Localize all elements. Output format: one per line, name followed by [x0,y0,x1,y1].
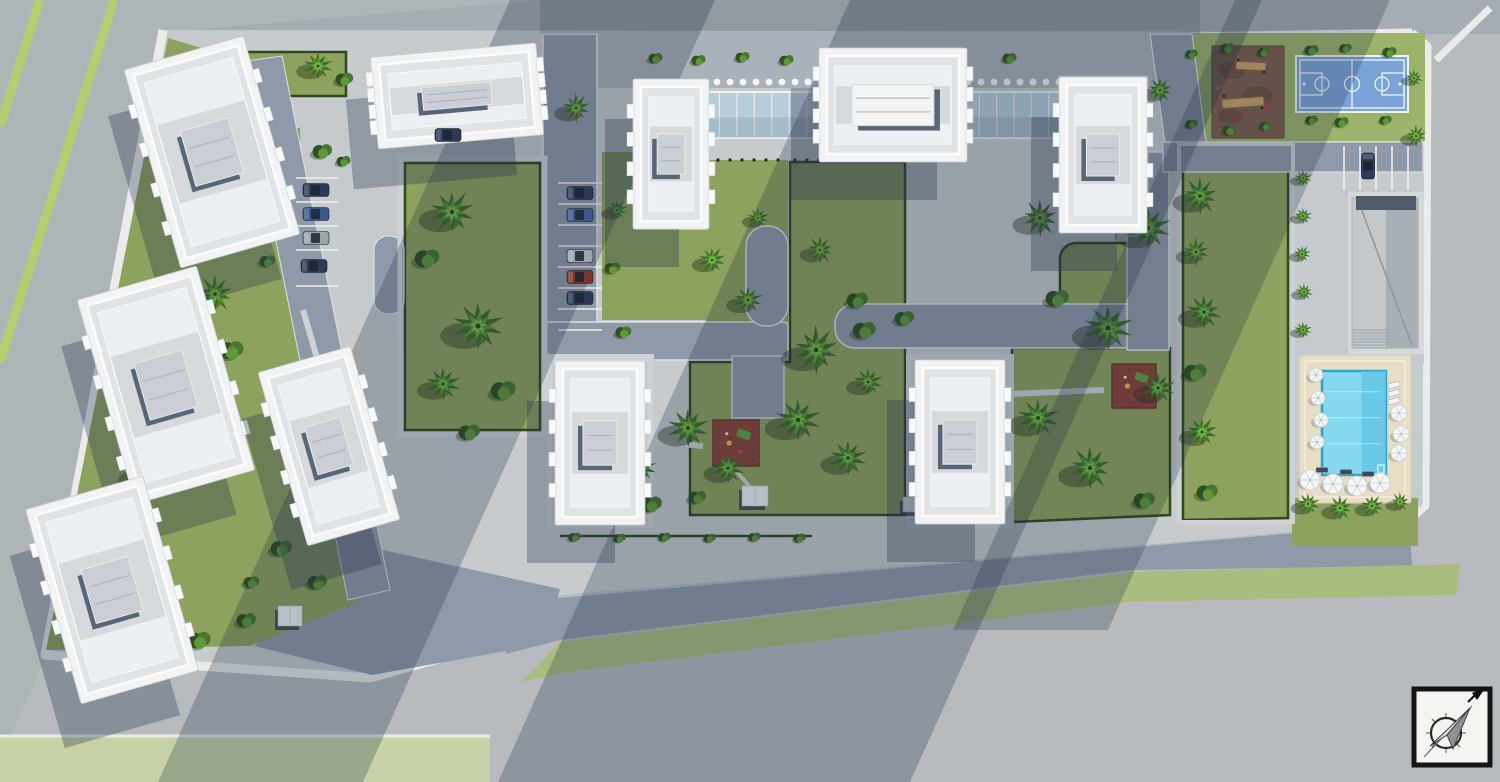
car-glass [309,261,318,271]
bush-light [739,55,746,62]
umbrella-pole [1400,433,1402,435]
awning-dot [779,79,786,86]
awning-dot [792,79,799,86]
palm-trunk-top [1302,215,1304,217]
parked-car [301,260,327,273]
balcony-tab [549,420,556,434]
building-roof-wing-n [835,66,951,86]
balcony-tab [367,88,375,103]
bush-light [695,58,702,65]
parked-car [303,232,329,245]
balcony-tab [627,162,634,176]
parked-car [567,209,593,222]
facility-roof-dark-half [1386,198,1418,348]
facility-roof-block [1356,196,1416,210]
building-core [943,420,977,464]
car-highlight [568,210,573,221]
bush-light [340,159,347,166]
balcony-tab [966,87,973,101]
building-roof-wing-n [571,379,629,412]
balcony-tab [1053,103,1060,117]
pool-lounger [1316,468,1328,473]
bush-light [609,266,617,274]
balcony-tab [708,162,715,176]
balcony-tab [1004,482,1011,496]
car-glass [575,188,584,198]
car-highlight [304,209,309,220]
building-core [657,134,685,174]
car-glass [311,185,320,195]
balcony-tab [627,190,634,204]
parked-car [435,129,461,142]
balcony-tab [644,452,651,466]
hoop-right [1398,82,1401,85]
car-glass [311,233,320,243]
car-highlight [568,188,573,199]
hedge-post-dot [752,158,755,161]
building-roof-wing-s [1075,184,1131,215]
balcony-tab [1146,163,1153,177]
umbrella-pole [1320,419,1322,421]
balcony-tab [536,57,544,72]
balcony-tab [549,483,556,497]
pool-water-deep [1362,371,1386,475]
building-roof-wing-n [931,378,989,411]
car-highlight [1363,154,1374,159]
balcony-tab [1004,451,1011,465]
balcony-tab [644,483,651,497]
awning-dot [727,79,734,86]
awning-dot [766,79,773,86]
car-highlight [568,293,573,304]
balcony-tab [909,451,916,465]
bush-light [783,58,790,65]
building-roof-wing-s [571,474,629,507]
bush-light [226,347,239,360]
palm-trunk-top [1301,253,1303,255]
car-glass [1363,161,1373,170]
balcony-tab [370,120,378,135]
car-glass [311,209,320,219]
building-core [852,84,934,125]
car-glass [575,272,584,282]
pool-loungers-white [1388,381,1401,405]
balcony-tab [966,109,973,123]
balcony-tab [1004,419,1011,433]
balcony-tab [1146,103,1153,117]
parked-car [567,292,593,305]
balcony-tab [813,109,820,123]
palm-trunk-top [1200,430,1203,433]
bush-light [318,148,328,158]
car-highlight [304,233,309,244]
clubhouse-building [1348,192,1424,354]
palm-trunk-top [1339,507,1342,510]
balcony-tab [813,87,820,101]
palm-trunk-top [317,65,320,68]
building-core [583,421,617,465]
palm-trunk-top [1307,503,1309,505]
balcony-tab [644,420,651,434]
balcony-tab [540,105,548,120]
parked-car [303,208,329,221]
bush-light [1203,489,1214,500]
umbrella-pole [1316,441,1318,443]
palm-trunk-top [1415,135,1417,137]
palm-trunk-top [1399,501,1401,503]
umbrella-pole [1317,397,1319,399]
car-highlight [304,185,309,196]
pool-lounger [1362,472,1374,477]
palm-trunk-top [711,259,714,262]
palm-trunk-top [1371,505,1373,507]
site-plan-page [0,0,1500,782]
balcony-tab [1004,388,1011,402]
building-roof-wing-n [1075,95,1131,126]
awning-dot [753,79,760,86]
balcony-tab [813,67,820,81]
umbrella-pole [1356,485,1358,487]
balcony-tab [1053,133,1060,147]
balcony-tab [549,452,556,466]
balcony-tab [1053,163,1060,177]
hedge-post-dot [728,158,731,161]
balcony-tab [708,190,715,204]
umbrella-pole [1379,482,1381,484]
balcony-tab [909,482,916,496]
pool-lounger [1340,470,1352,475]
parked-car [567,187,593,200]
umbrella-pole [1315,374,1317,376]
balcony-tab [909,388,916,402]
parked-car [567,250,593,263]
balcony-tab [966,129,973,143]
bush-light [620,330,628,338]
balcony-tab [966,67,973,81]
umbrella-pole [1332,483,1334,485]
umbrella-pole [1398,412,1400,414]
parked-car [303,184,329,197]
car-glass [575,293,584,303]
car-highlight [302,261,307,272]
balcony-tab [549,389,556,403]
building-roof-wing-n [649,97,693,127]
car-highlight [568,272,573,283]
palm-trunk-top [1302,329,1304,331]
building-roof-wing-s [649,181,693,211]
balcony-tab [1053,193,1060,207]
parked-car [567,271,593,284]
palm-trunk-top [1413,77,1415,79]
balcony-tab [644,389,651,403]
building-roof-wing-s [931,473,989,506]
bush-light [194,637,206,649]
building-core [1086,134,1119,176]
balcony-tab [627,132,634,146]
palm-trunk-top [1303,291,1305,293]
site-plan-svg [0,0,1500,782]
top-street-shade [540,0,1200,34]
car-highlight [568,251,573,262]
balcony-tab [537,73,545,88]
compass-north-badge [1414,687,1490,765]
bush-light [1338,120,1345,127]
awning-dot [805,79,812,86]
balcony-tab [909,419,916,433]
hedge-post-dot [716,158,719,161]
bush-light [341,77,350,86]
balcony-tab [366,72,374,87]
umbrella-pole [1309,479,1311,481]
balcony-tab [1146,193,1153,207]
umbrella-pole [1398,452,1400,454]
hedge-post-dot [764,158,767,161]
bush-light [1386,50,1393,57]
parked-car [1362,153,1375,179]
hedge-post-dot [740,158,743,161]
awning-dot [714,79,721,86]
balcony-tab [539,90,547,105]
awning-dot [740,79,747,86]
balcony-tab [368,105,376,120]
bush-light [1383,118,1389,124]
car-glass [443,130,452,140]
balcony-tab [1146,133,1153,147]
balcony-tab [708,132,715,146]
balcony-tab [813,129,820,143]
car-glass [575,251,584,261]
car-highlight [436,130,441,141]
balcony-tab [708,104,715,118]
car-glass [575,210,584,220]
balcony-tab [627,104,634,118]
